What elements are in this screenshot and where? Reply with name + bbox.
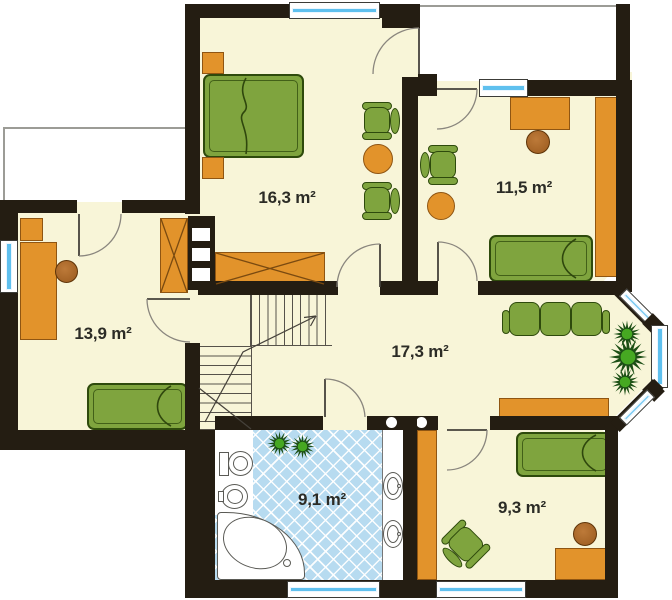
toilet-bowl [233,456,248,471]
window-glass [290,587,377,592]
wall [185,430,215,582]
wall [122,200,200,213]
window-glass [439,587,523,592]
armchair [362,102,400,140]
shelf [20,218,43,241]
chimney-flue [192,268,210,281]
built-in-closet [160,218,188,293]
window-glass [6,243,12,290]
wall [185,4,200,214]
wall [198,281,338,295]
wall [380,281,438,295]
single-bed [516,432,613,477]
room-label-bedroom-bottom: 9,3 m² [498,498,546,518]
room-label-hall: 17,3 m² [391,342,448,362]
wall [616,80,632,292]
outside-area [618,430,672,600]
room-label-bedroom-top: 16,3 m² [258,188,315,208]
wall [185,343,200,433]
wall-column [386,417,397,428]
wardrobe [417,430,437,580]
armchair [362,182,400,220]
room-label-bedroom-left: 13,9 m² [74,324,131,344]
single-bed [87,383,188,430]
window [287,581,380,598]
room-label-bathroom: 9,1 m² [298,490,346,510]
bidet-bowl [227,489,243,504]
wall [382,4,420,28]
stool [526,130,550,154]
window-glass [292,8,377,13]
mattress [93,389,182,424]
wall [616,4,630,82]
bathtub-drain [283,559,291,567]
wall [185,580,618,598]
sofa [502,300,610,338]
nightstand [202,52,224,74]
wall [527,80,618,96]
stairs-upper-flight [250,295,332,346]
single-bed [489,235,593,282]
desk [20,242,57,340]
balcony-left [3,127,185,202]
washbasin-counter [382,430,405,580]
balcony-top [419,5,618,81]
mattress [495,241,587,276]
window [289,2,380,19]
double-bed [203,74,304,158]
mattress [522,438,607,471]
floor-plan: 16,3 m² 11,5 m² 13,9 m² 17,3 m² 9,1 m² 9… [0,0,672,600]
window [436,581,526,598]
stool [573,522,597,546]
chimney-flue [192,228,210,241]
bidet-tap [218,491,224,502]
wardrobe [595,97,617,277]
washbasin-tap [397,532,401,536]
room-label-bedroom-right: 11,5 m² [496,178,552,198]
armchair [420,145,458,185]
chimney-flue [192,248,210,261]
wall [418,74,437,96]
wall [215,416,323,430]
wall [403,416,417,584]
coffee-table [427,192,455,220]
window [0,240,18,293]
wall [402,77,418,295]
outside-area [0,450,185,600]
sideboard [499,398,609,417]
coffee-table [363,144,393,174]
outside-area [0,0,185,128]
wall [0,430,200,450]
washbasin-tap [397,484,401,488]
window-glass [482,85,525,91]
wall [490,416,618,430]
wall [0,200,18,450]
mattress [209,80,298,152]
wall [605,424,618,598]
window-glass [657,328,663,385]
wall [478,281,618,295]
window [479,79,528,97]
desk [510,97,570,130]
nightstand [202,157,224,179]
wall-column [416,417,427,428]
stool [55,260,78,283]
outside-area [632,0,672,290]
